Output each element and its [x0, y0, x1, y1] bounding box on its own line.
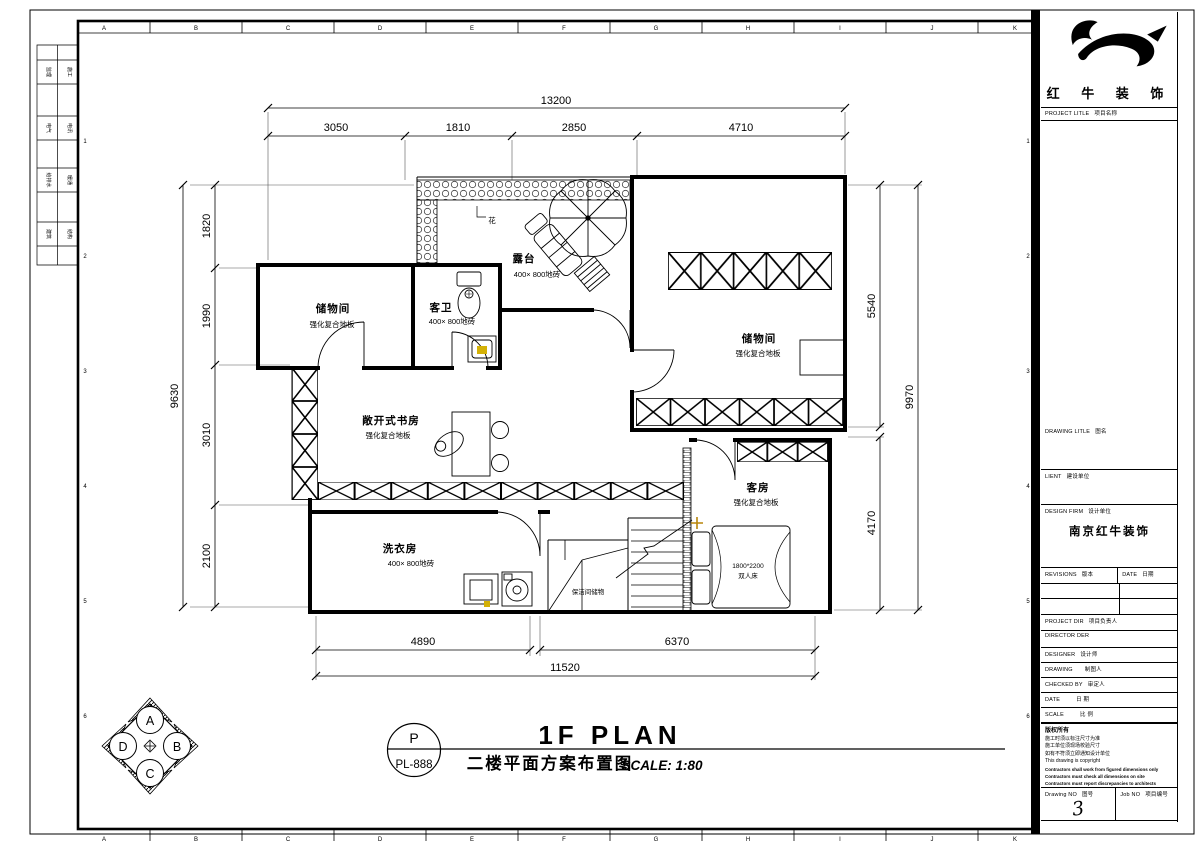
svg-text:3: 3 [1026, 369, 1030, 375]
svg-text:9970: 9970 [904, 385, 916, 409]
wardrobe-storage-top [668, 252, 832, 290]
bookshelf-left [292, 368, 318, 500]
label-bed-type: 双人床 [738, 571, 758, 580]
terrace-step-mat [574, 256, 609, 291]
svg-text:G: G [654, 26, 659, 32]
client-row: LIENT建设单位 [1041, 470, 1178, 505]
svg-text:结构: 结构 [66, 229, 73, 239]
label-guest-bath: 客卫 [429, 301, 453, 314]
checked-by-row: CHECKED BY审定人 [1041, 678, 1178, 693]
svg-text:F: F [562, 26, 566, 32]
svg-text:A: A [102, 26, 106, 32]
svg-text:400× 800地砖: 400× 800地砖 [388, 558, 435, 568]
margin-discipline-table: 监理 施工 电气 电讯 给排水 暖通 建筑 结构 [37, 45, 78, 265]
svg-text:B: B [173, 740, 181, 754]
svg-text:I: I [839, 837, 841, 843]
label-bed-size: 1800*2200 [732, 563, 764, 570]
svg-text:强化复合地板: 强化复合地板 [736, 348, 781, 358]
hatch-elements [292, 180, 843, 612]
svg-text:E: E [470, 26, 474, 32]
dimension-top: 13200 3050 1810 2850 4710 [264, 95, 849, 140]
designer-row: DESIGNER设计师 [1041, 648, 1178, 663]
compass-center-cross [144, 740, 156, 752]
svg-text:H: H [746, 837, 750, 843]
svg-text:11520: 11520 [550, 662, 580, 674]
revisions-table: REVISIONS版本 DATE日期 [1041, 568, 1178, 615]
bathroom-sink [468, 336, 496, 362]
study-desk [430, 412, 508, 476]
svg-text:强化复合地板: 强化复合地板 [366, 430, 411, 440]
title-block: 红 牛 装 饰 PROJECT LITLE项目名称 DRAWING LITLE图… [1041, 12, 1178, 822]
svg-text:J: J [931, 837, 934, 843]
svg-text:C: C [286, 26, 291, 32]
svg-text:强化复合地板: 强化复合地板 [310, 319, 355, 329]
svg-text:给排水: 给排水 [45, 172, 52, 187]
label-storage-left: 储物间 [316, 302, 351, 315]
svg-text:1990: 1990 [201, 304, 213, 328]
door-guest-room [695, 440, 735, 480]
drawing-title-bar: P PL-888 1F PLAN 二楼平面方案布置图 SCALE: 1:80 [388, 720, 1006, 777]
svg-text:4170: 4170 [866, 511, 878, 535]
svg-text:1: 1 [1026, 139, 1030, 145]
svg-text:D: D [378, 26, 383, 32]
svg-text:1810: 1810 [446, 122, 470, 134]
company-name: 红 牛 装 饰 [1041, 83, 1178, 102]
staircase [548, 520, 692, 612]
wardrobe-guest-room [737, 442, 828, 462]
svg-text:监理: 监理 [45, 67, 52, 77]
project-title-row: PROJECT LITLE项目名称 [1041, 107, 1178, 121]
svg-text:4890: 4890 [411, 636, 435, 648]
label-laundry: 洗衣房 [383, 542, 418, 555]
svg-text:6370: 6370 [665, 636, 689, 648]
svg-text:I: I [839, 26, 841, 32]
svg-text:F: F [562, 837, 566, 843]
svg-text:4: 4 [83, 484, 87, 490]
light-symbol [691, 517, 703, 529]
label-terrace: 露台 [513, 252, 536, 265]
svg-text:400× 800地砖: 400× 800地砖 [429, 316, 476, 326]
wardrobe-storage-bottom [636, 398, 843, 426]
grid-reference-numbers: 12 34 56 12 34 56 [83, 139, 1030, 720]
brick-wall-stair [683, 448, 691, 612]
svg-text:P: P [409, 730, 418, 746]
svg-text:6: 6 [1026, 714, 1030, 720]
bull-logo-icon [1046, 15, 1174, 77]
date-row: DATE日 期 [1041, 693, 1178, 708]
planter-strip-left [417, 200, 437, 263]
door-terrace [592, 310, 630, 348]
svg-text:电讯: 电讯 [66, 123, 73, 133]
svg-text:B: B [194, 26, 198, 32]
drawing-sheet: AB CD EF GH IJ K AB CD EF GH IJ K 12 34 … [0, 0, 1200, 845]
label-understair-storage: 保洁间储物 [572, 587, 605, 596]
scale-row: SCALE比 例 [1041, 708, 1178, 724]
design-firm-row: DESIGN FIRM设计单位 南京红牛装饰 [1041, 505, 1178, 568]
lounge-chair [523, 212, 584, 278]
svg-text:施工: 施工 [66, 67, 73, 77]
svg-text:1: 1 [83, 139, 87, 145]
svg-text:2: 2 [1026, 254, 1030, 260]
plan-scale: SCALE: 1:80 [621, 758, 703, 773]
svg-text:4: 4 [1026, 484, 1030, 490]
planter-strip-top [417, 180, 630, 200]
walls [258, 177, 845, 612]
svg-text:D: D [378, 837, 383, 843]
parasol-umbrella [550, 180, 627, 257]
copyright-block: 版权所有 施工时须以标注尺寸为准 施工单位须现场校验尺寸 如有不符须立即通知设计… [1041, 726, 1178, 788]
svg-text:A: A [102, 837, 106, 843]
label-study: 敞开式书房 [362, 414, 420, 427]
svg-text:K: K [1013, 837, 1017, 843]
director-row: DIRECTOR DER [1041, 631, 1178, 648]
svg-text:电气: 电气 [45, 123, 52, 133]
label-guest-room: 客房 [746, 481, 770, 494]
drawing-number-row: Drawing NO图号 3 Job NO项目编号 [1041, 788, 1178, 821]
drawing-by-row: DRAWING制图人 [1041, 663, 1178, 678]
furniture [430, 180, 845, 608]
project-dir-row: PROJECT DIR项目负责人 [1041, 615, 1178, 631]
svg-text:D: D [118, 740, 127, 754]
toilet [457, 272, 481, 318]
svg-text:13200: 13200 [541, 95, 572, 107]
laundry-cabinet [464, 574, 498, 607]
svg-text:3010: 3010 [201, 423, 213, 447]
svg-text:A: A [146, 714, 155, 728]
svg-text:K: K [1013, 26, 1017, 32]
dimension-bottom: 4890 6370 11520 [312, 636, 819, 680]
svg-text:建筑: 建筑 [45, 229, 52, 239]
design-firm-name: 南京红牛装饰 [1041, 523, 1178, 539]
svg-text:PL-888: PL-888 [395, 759, 432, 771]
label-storage-right: 储物间 [742, 332, 777, 345]
svg-text:C: C [145, 767, 154, 781]
dimension-right: 5540 4170 9970 [866, 181, 922, 614]
floor-plan-svg: AB CD EF GH IJ K AB CD EF GH IJ K 12 34 … [0, 0, 1200, 845]
svg-text:B: B [194, 837, 198, 843]
svg-text:9630: 9630 [169, 384, 181, 408]
plan-title-cn: 二楼平面方案布置图 [467, 753, 634, 773]
thin-walls [292, 177, 683, 612]
svg-text:H: H [746, 26, 750, 32]
svg-text:E: E [470, 837, 474, 843]
svg-text:G: G [654, 837, 659, 843]
company-logo-cell: 红 牛 装 饰 [1041, 12, 1178, 108]
svg-text:5540: 5540 [866, 294, 878, 318]
svg-text:1820: 1820 [201, 214, 213, 238]
svg-text:4710: 4710 [729, 122, 753, 134]
svg-text:400× 800地砖: 400× 800地砖 [514, 269, 561, 279]
svg-text:J: J [931, 26, 934, 32]
svg-text:强化复合地板: 强化复合地板 [734, 497, 779, 507]
svg-text:3: 3 [83, 369, 87, 375]
door-storage-right [632, 350, 674, 392]
duct-box [800, 340, 845, 375]
svg-text:暖通: 暖通 [66, 175, 73, 185]
door-laundry [496, 512, 540, 556]
bookshelf-bottom [318, 482, 684, 500]
svg-text:6: 6 [83, 714, 87, 720]
svg-text:5: 5 [83, 599, 87, 605]
planter-leader-line [477, 206, 486, 217]
dimension-left: 9630 1820 1990 3010 2100 [169, 181, 219, 611]
label-planter: 花 [488, 215, 496, 225]
plan-title-en: 1F PLAN [538, 720, 681, 750]
sheet-border [30, 10, 1194, 834]
svg-text:5: 5 [1026, 599, 1030, 605]
svg-text:2: 2 [83, 254, 87, 260]
svg-text:3050: 3050 [324, 122, 348, 134]
svg-text:2850: 2850 [562, 122, 586, 134]
elevation-compass: A B C D [102, 698, 198, 794]
washing-machine [502, 572, 532, 606]
svg-text:C: C [286, 837, 291, 843]
svg-text:2100: 2100 [201, 544, 213, 568]
drawing-title-row: DRAWING LITLE图名 [1041, 425, 1178, 470]
